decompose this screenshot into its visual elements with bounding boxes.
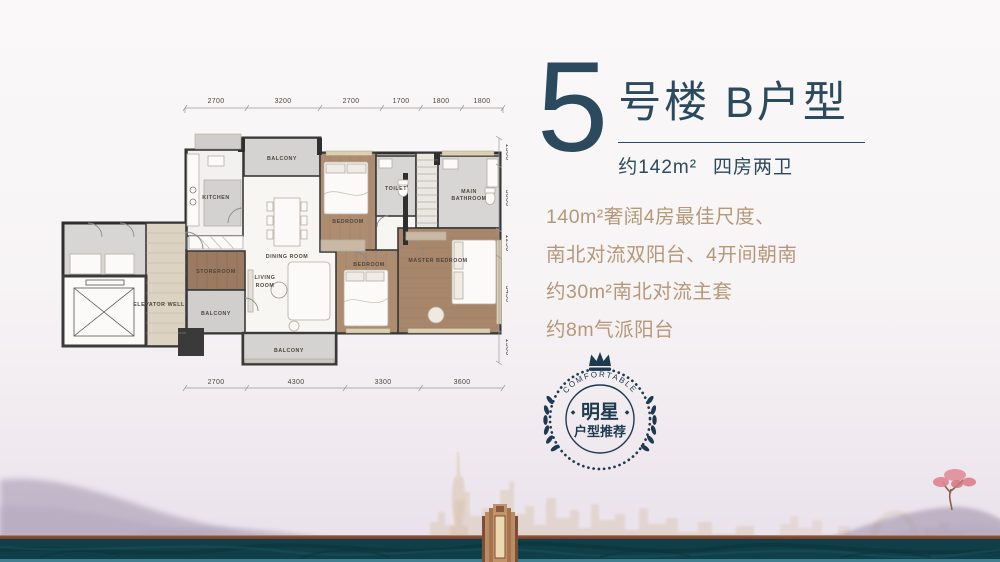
dims-bottom: 2700 4300 3300 3600: [183, 379, 505, 391]
dims-top: 2700 3200 2700 1700 1800 1800: [183, 98, 505, 113]
label-toilet: TOILET: [385, 186, 407, 192]
wall-stub: [178, 328, 204, 356]
label-master-bedroom: MASTER BEDROOM: [408, 258, 467, 264]
dim-bottom-0: 2700: [208, 379, 225, 386]
dim-top-4: 1800: [433, 98, 450, 105]
building-number: 5: [537, 52, 606, 164]
label-balcony-top: BALCONY: [267, 156, 297, 162]
feature-list: 140m²奢阔4房最佳尺度、 南北对流双阳台、4开间朝南 约30m²南北对流主套…: [546, 199, 797, 349]
dim-top-5: 1800: [474, 98, 491, 105]
label-storeroom: STOREROOM: [196, 269, 236, 275]
label-balcony-left: BALCONY: [201, 311, 231, 317]
label-kitchen: KITCHEN: [202, 195, 229, 201]
label-living-2: ROOM: [256, 283, 275, 289]
header: 5 号楼 B户型 约142m² 四房两卫: [537, 52, 865, 179]
recommend-badge: COMFORTABLE ◆ ◆ 明星 户型推荐: [533, 350, 667, 484]
dim-right-0: 1300: [504, 144, 508, 161]
area-value: 约142m²: [618, 152, 697, 179]
dim-top-2: 2700: [343, 98, 360, 105]
layout-value: 四房两卫: [713, 152, 793, 179]
diamond-right-icon: ◆: [625, 410, 630, 416]
deco-tower-icon: [478, 503, 522, 562]
dim-bottom-3: 3600: [454, 379, 471, 386]
dim-right-2: 1250: [504, 235, 508, 252]
subtitle: 约142m² 四房两卫: [618, 152, 865, 179]
wall-chunk-2: [317, 138, 322, 155]
label-dining: DINING ROOM: [266, 254, 309, 260]
crown-icon: [589, 352, 611, 371]
dim-right-1: 3000: [504, 190, 508, 207]
laurel-left-icon: [543, 395, 560, 453]
wall-chunk-4: [434, 153, 440, 165]
dim-top-0: 2700: [208, 98, 225, 105]
label-main-bath-1: MAIN: [461, 189, 477, 195]
diamond-left-icon: ◆: [571, 410, 576, 416]
label-balcony-bottom: BALCONY: [274, 348, 304, 354]
label-living-1: LIVING: [255, 275, 276, 281]
dim-top-1: 3200: [275, 98, 292, 105]
badge-subtitle: 户型推荐: [574, 424, 626, 439]
mountains-left-icon: [0, 479, 400, 538]
floorplan: KITCHEN BALCONY DINING ROOM BEDROOM TOIL…: [58, 90, 508, 400]
label-main-bath-2: BATHROOM: [451, 196, 486, 202]
dim-top-3: 1700: [393, 98, 410, 105]
dim-right-4: 1500: [504, 339, 508, 356]
dim-bottom-2: 3300: [375, 379, 392, 386]
dim-right-3: 3450: [504, 286, 508, 303]
feature-line: 约30m²南北对流主套: [546, 274, 797, 312]
svg-text:COMFORTABLE: COMFORTABLE: [561, 370, 639, 395]
label-bedroom-top: BEDROOM: [332, 219, 364, 225]
feature-line: 140m²奢阔4房最佳尺度、: [546, 199, 797, 237]
room-corridor: [146, 223, 186, 346]
feature-line: 南北对流双阳台、4开间朝南: [546, 237, 797, 275]
label-elevator-well: ELEVATOR WELL: [133, 302, 185, 308]
blossom-tree-icon: [933, 469, 976, 510]
dim-bottom-1: 4300: [288, 379, 305, 386]
label-bedroom-bottom: BEDROOM: [353, 262, 385, 268]
poster: KITCHEN BALCONY DINING ROOM BEDROOM TOIL…: [0, 0, 1000, 562]
badge-arc-text: COMFORTABLE: [561, 370, 639, 395]
badge-title: 明星: [581, 401, 619, 423]
page-title: 号楼 B户型: [618, 68, 865, 130]
feature-line: 约8m气派阳台: [546, 312, 797, 350]
hill-right-icon: [830, 507, 1000, 538]
title-underline: [618, 142, 865, 143]
